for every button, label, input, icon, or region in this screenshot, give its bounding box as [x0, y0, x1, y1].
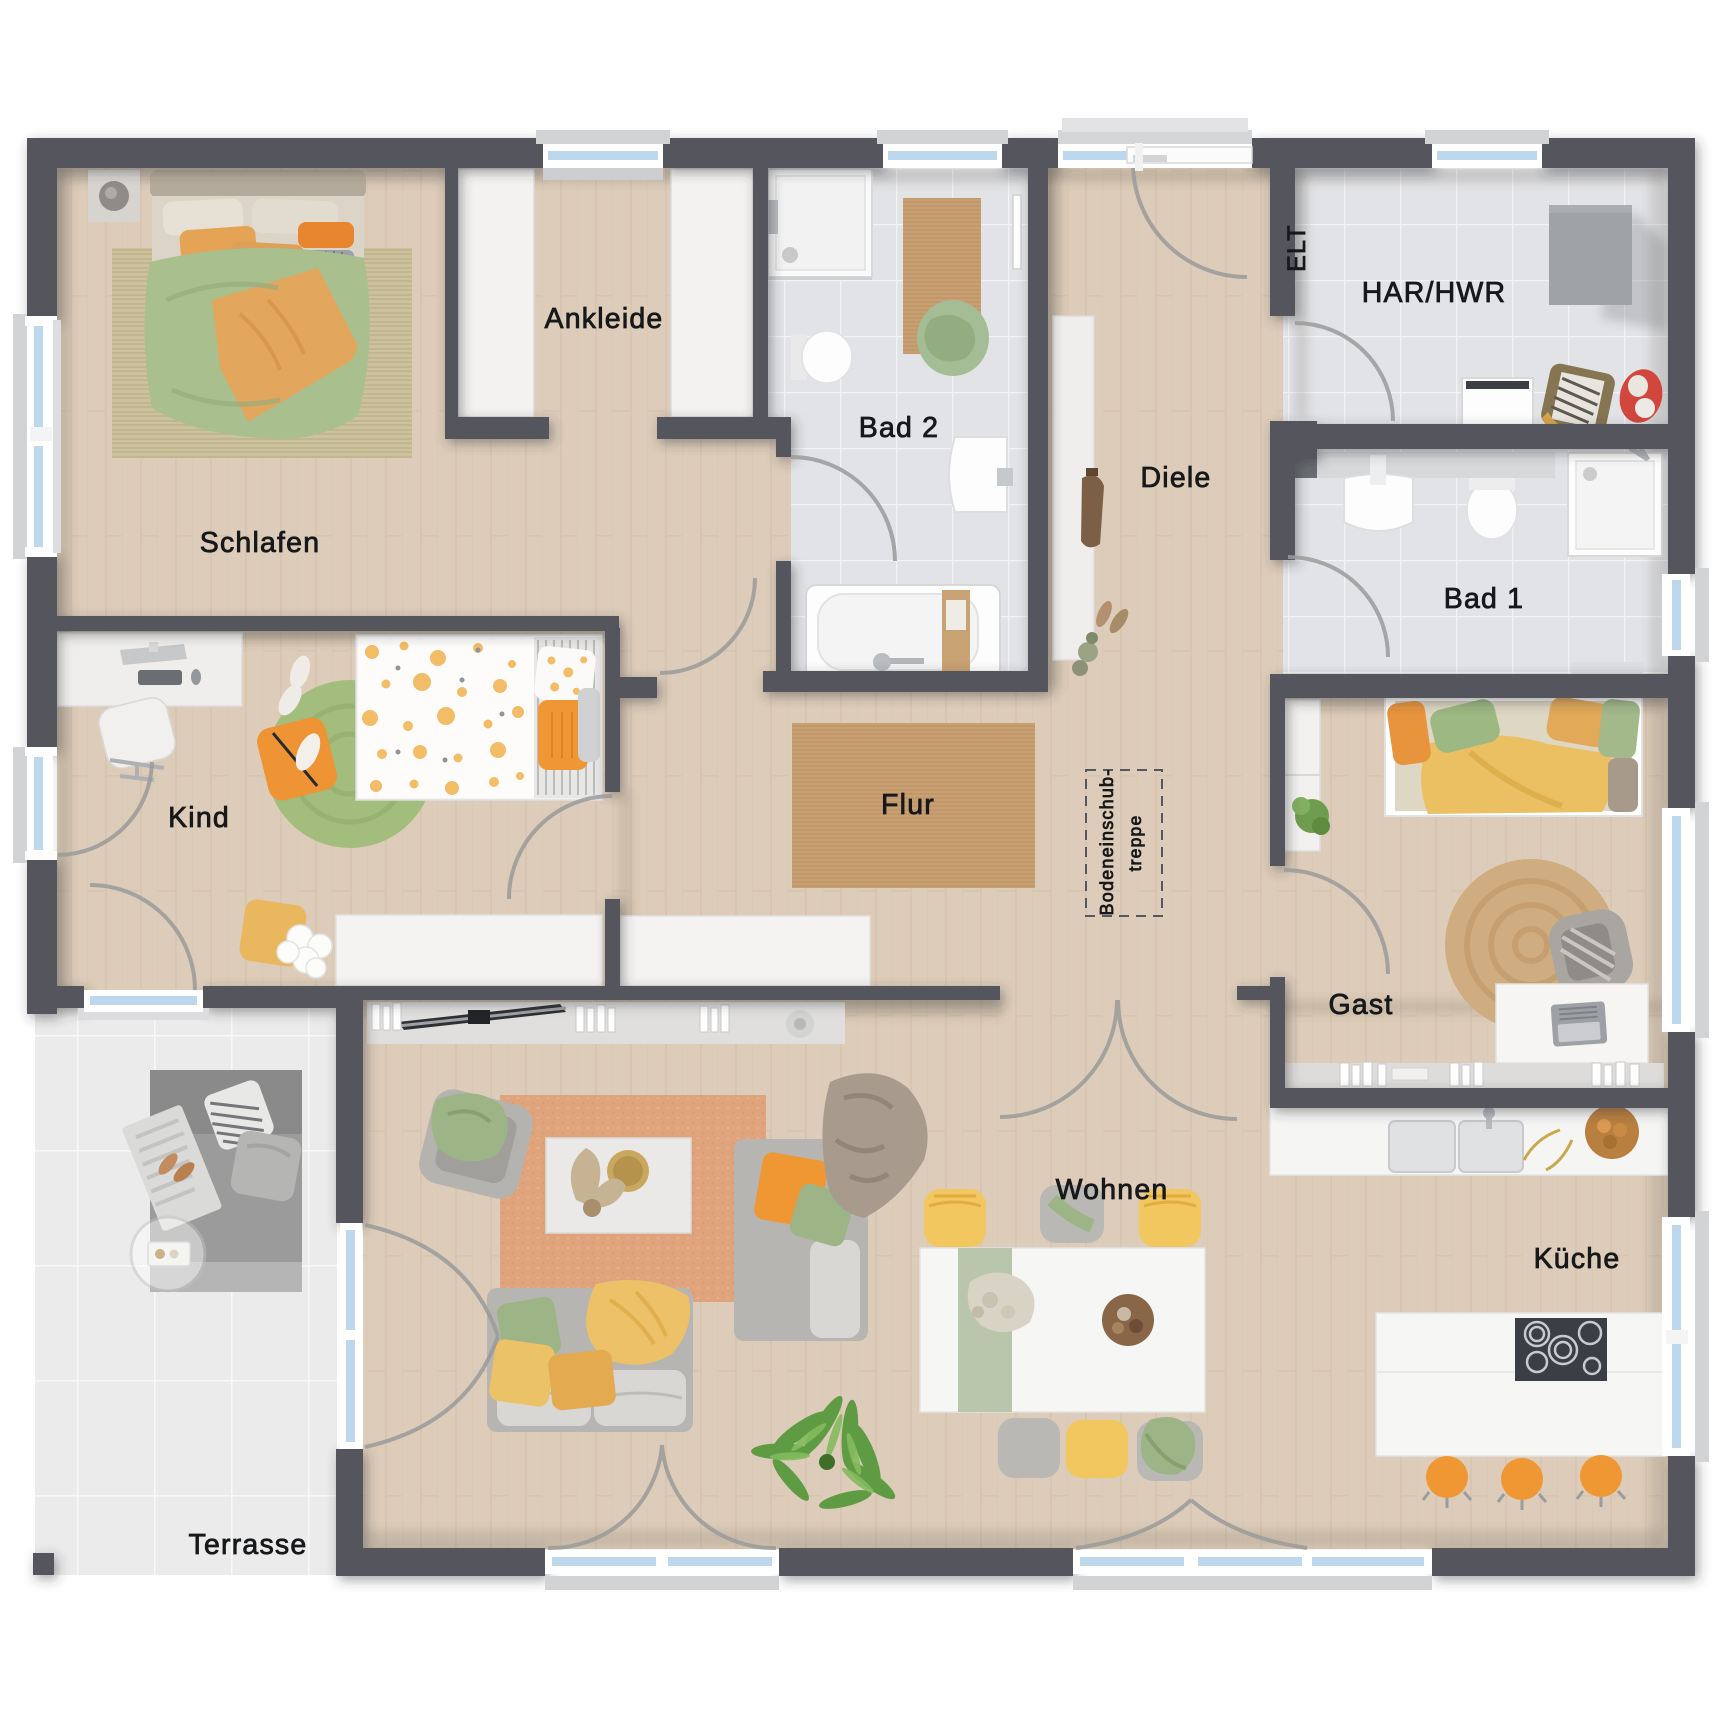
svg-text:Küche: Küche [1534, 1243, 1621, 1275]
svg-text:Terrasse: Terrasse [189, 1529, 308, 1561]
svg-text:Schlafen: Schlafen [200, 527, 321, 559]
svg-text:treppe: treppe [1125, 815, 1145, 872]
svg-text:Ankleide: Ankleide [545, 303, 664, 335]
svg-text:Diele: Diele [1141, 462, 1212, 494]
svg-text:Bodeneinschub-: Bodeneinschub- [1097, 769, 1117, 916]
svg-text:Bad 2: Bad 2 [859, 412, 939, 444]
svg-text:Wohnen: Wohnen [1056, 1174, 1169, 1206]
svg-text:Kind: Kind [168, 802, 230, 834]
svg-text:Gast: Gast [1329, 989, 1394, 1021]
svg-text:Flur: Flur [881, 789, 935, 821]
svg-text:HAR/HWR: HAR/HWR [1362, 277, 1507, 309]
svg-text:Bad 1: Bad 1 [1444, 583, 1524, 615]
svg-text:ELT: ELT [1283, 224, 1311, 272]
